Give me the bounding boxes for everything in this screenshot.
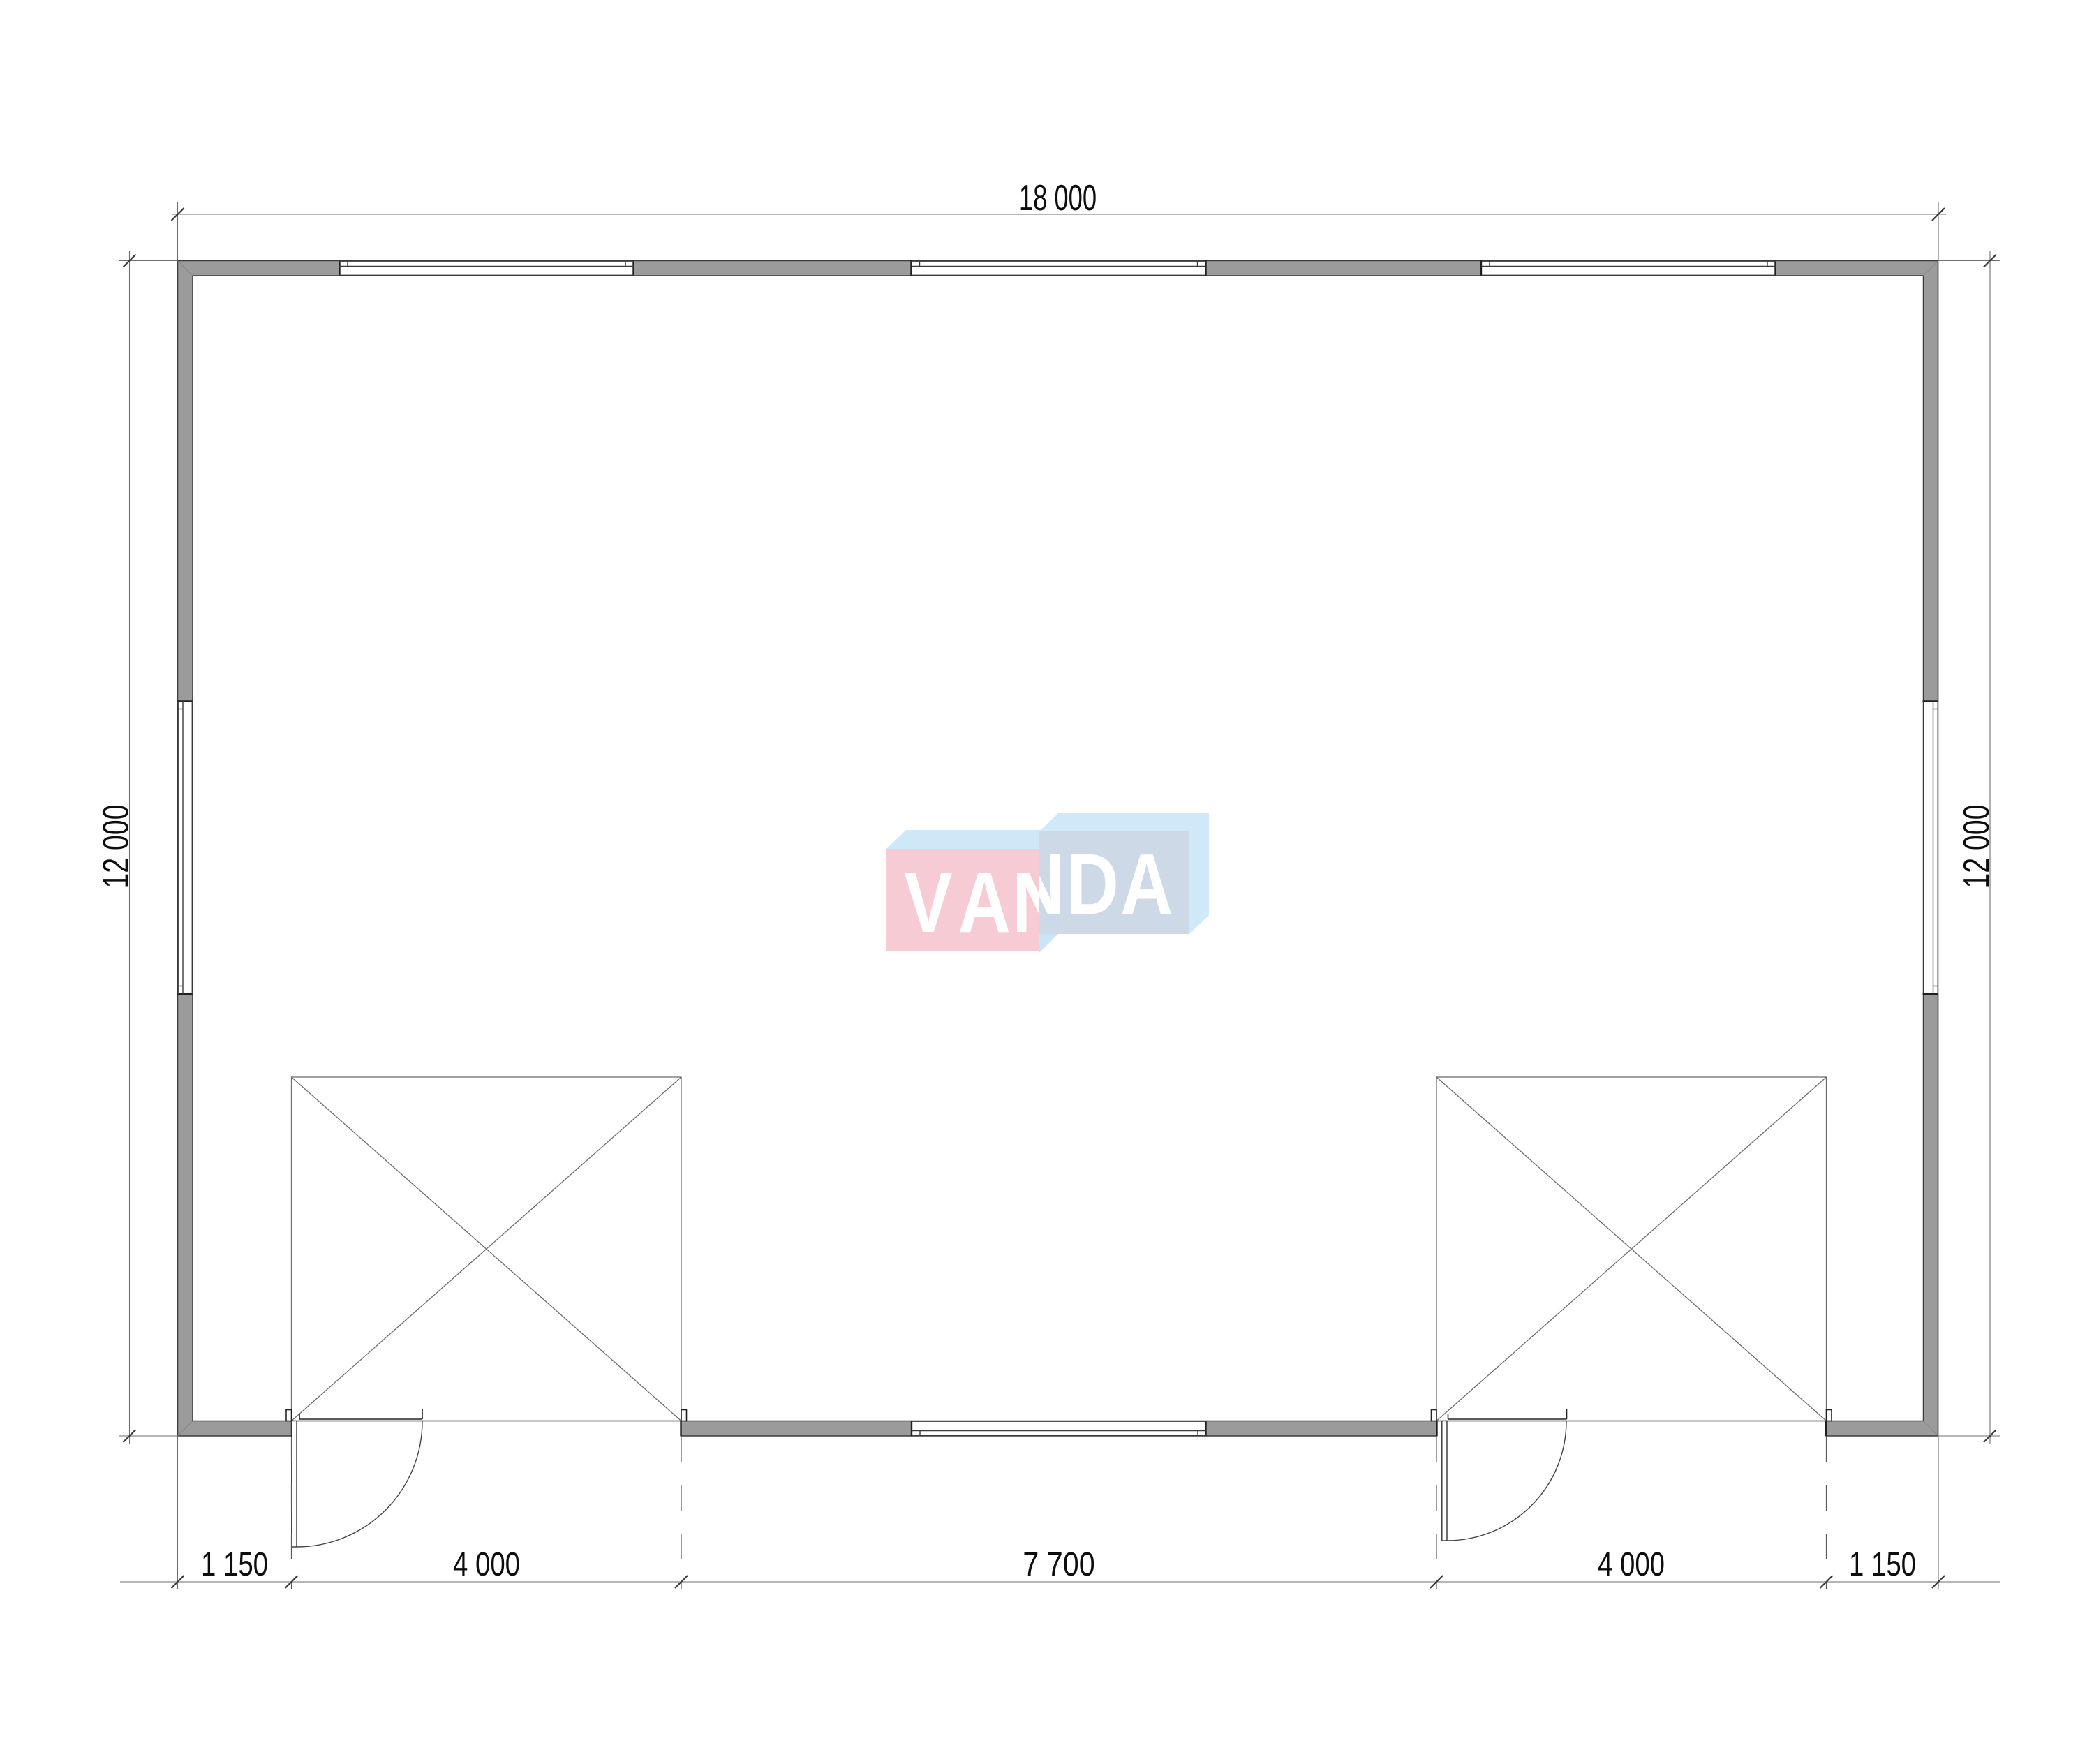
svg-text:V: V: [904, 855, 953, 951]
svg-text:18 000: 18 000: [1019, 177, 1097, 218]
svg-text:7 700: 7 700: [1023, 1546, 1094, 1583]
svg-text:12 000: 12 000: [95, 804, 136, 888]
svg-text:1 150: 1 150: [1849, 1546, 1916, 1583]
svg-text:D: D: [1067, 837, 1119, 933]
svg-text:A: A: [1120, 837, 1173, 933]
svg-text:12 000: 12 000: [1956, 804, 1997, 888]
svg-text:4 000: 4 000: [1598, 1546, 1665, 1583]
svg-text:1 150: 1 150: [201, 1546, 268, 1583]
svg-text:A: A: [958, 855, 1011, 951]
svg-text:4 000: 4 000: [453, 1546, 520, 1583]
